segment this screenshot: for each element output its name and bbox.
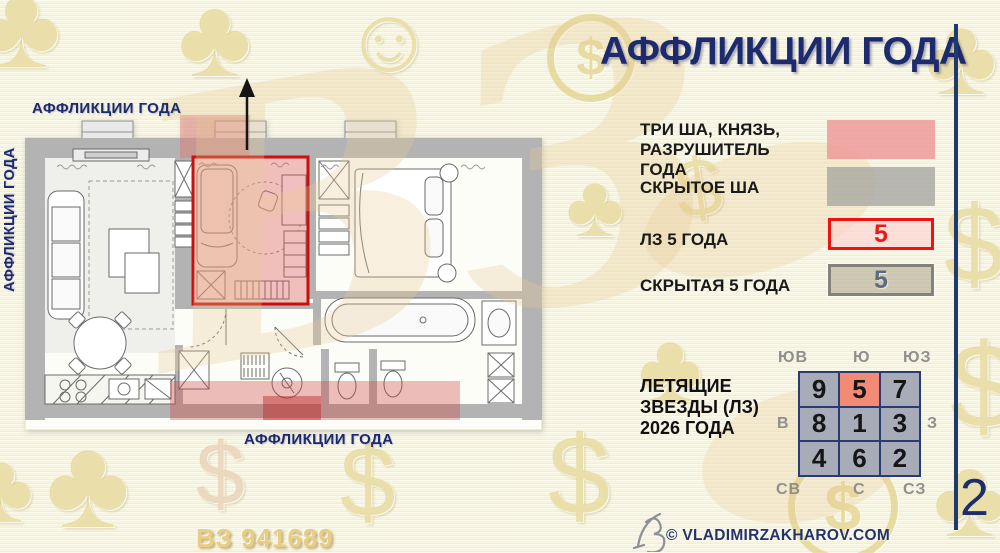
flying-stars-grid: 9 5 7 8 1 3 4 6 2 bbox=[798, 371, 921, 477]
clover-icon: ♣ bbox=[0, 0, 61, 86]
page-number: 2 bbox=[960, 468, 989, 528]
grid-cell: 1 bbox=[840, 408, 878, 441]
affliction-zone-room bbox=[193, 157, 308, 304]
flying-stars-label: ЛЕТЯЩИЕ ЗВЕЗДЫ (ЛЗ) 2026 ГОДА bbox=[640, 376, 790, 439]
floor-plan bbox=[25, 115, 542, 430]
direction-label-e: В bbox=[777, 415, 790, 433]
direction-label-s: Ю bbox=[853, 349, 871, 367]
vz-logo-icon bbox=[630, 508, 670, 552]
grid-cell: 3 bbox=[881, 408, 919, 441]
plan-label-top: АФФЛИКЦИИ ГОДА bbox=[32, 100, 181, 117]
direction-label-sw: ЮЗ bbox=[903, 349, 932, 367]
clover-icon: ♣ bbox=[46, 420, 130, 548]
legend-swatch-gray bbox=[827, 167, 935, 206]
legend-swatch-pink bbox=[827, 120, 935, 159]
plan-label-bottom: АФФЛИКЦИИ ГОДА bbox=[244, 431, 393, 448]
clover-icon: ♣ bbox=[0, 438, 34, 538]
copyright-text: © VLADIMIRZAKHAROV.COM bbox=[666, 527, 890, 545]
grid-cell: 8 bbox=[800, 408, 838, 441]
hidden5-value: 5 bbox=[874, 266, 888, 295]
plan-label-left: АФФЛИКЦИИ ГОДА bbox=[2, 158, 18, 292]
grid-cell: 4 bbox=[800, 442, 838, 475]
dollar-icon: $ bbox=[196, 430, 245, 518]
legend-label-hidden5: СКРЫТАЯ 5 ГОДА bbox=[640, 276, 790, 296]
smiley-icon: ☺ bbox=[342, 0, 436, 86]
grid-cell: 2 bbox=[881, 442, 919, 475]
grid-cell-highlight: 5 bbox=[840, 373, 878, 406]
stamp-watermark: ВЗ 941689 bbox=[196, 523, 334, 553]
grid-cell: 7 bbox=[881, 373, 919, 406]
legend-label-tri-sha: ТРИ ША, КНЯЗЬ, РАЗРУШИТЕЛЬ ГОДА bbox=[640, 120, 820, 180]
divider-line bbox=[954, 24, 958, 530]
direction-label-n: С bbox=[853, 481, 866, 499]
clover-icon: ♣ bbox=[566, 162, 624, 250]
north-arrow-icon bbox=[236, 76, 258, 152]
direction-label-se: ЮВ bbox=[778, 349, 808, 367]
grid-cell: 6 bbox=[840, 442, 878, 475]
grid-cell: 9 bbox=[800, 373, 838, 406]
direction-label-nw: СЗ bbox=[903, 481, 926, 499]
direction-label-ne: СВ bbox=[776, 481, 801, 499]
affliction-zone-bottom-dark bbox=[263, 396, 321, 420]
dollar-icon: $ bbox=[548, 420, 610, 532]
lz5-value: 5 bbox=[874, 220, 888, 249]
direction-label-w: З bbox=[927, 415, 938, 433]
dollar-icon: $ bbox=[944, 190, 1000, 298]
legend-label-hidden-sha: СКРЫТОЕ ША bbox=[640, 178, 759, 198]
page-title: АФФЛИКЦИИ ГОДА bbox=[600, 30, 938, 74]
legend-box-hidden5: 5 bbox=[828, 264, 934, 296]
legend-label-lz5: ЛЗ 5 ГОДА bbox=[640, 230, 728, 250]
legend-box-lz5: 5 bbox=[828, 218, 934, 250]
slide-canvas: ♣ ♣ ☺ $ ♣ ♣ $ $ ♣ $ $ ♣ $ $ ♣ ♣ $ ВЗ bbox=[0, 0, 1000, 553]
